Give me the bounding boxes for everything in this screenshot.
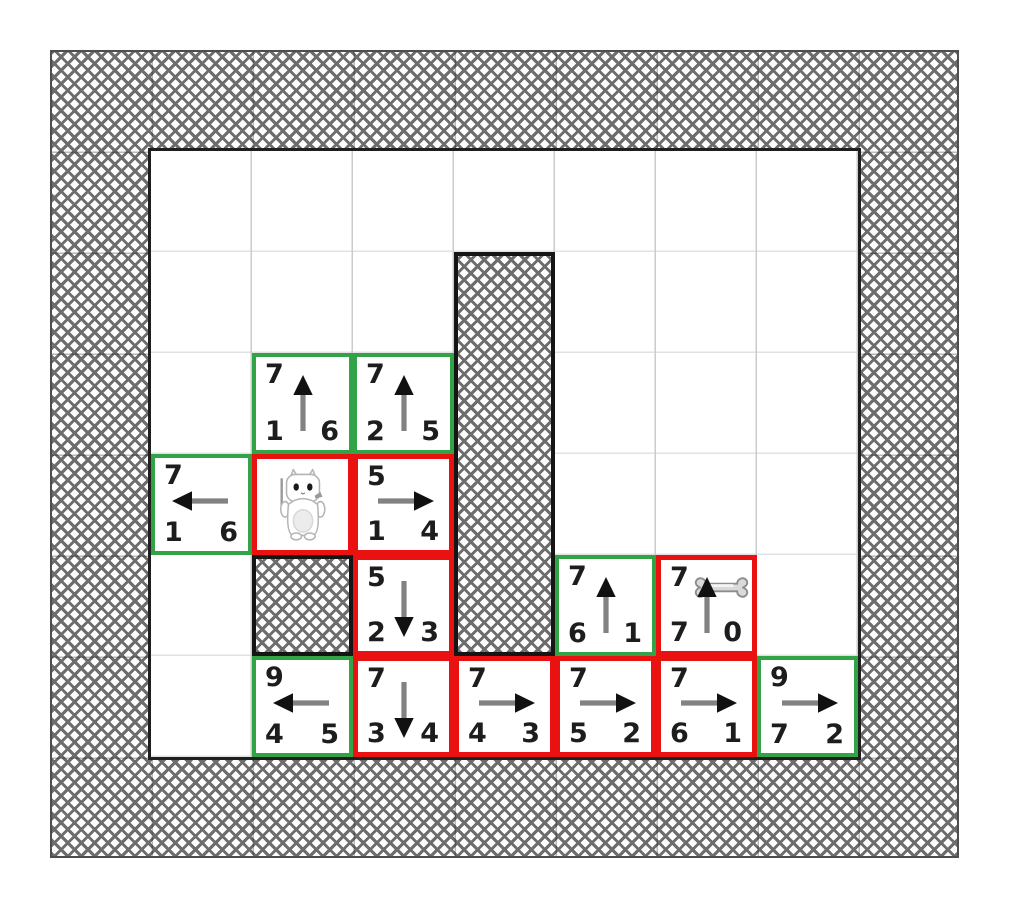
cost-bottom-right: 6 [320, 418, 339, 445]
grid-cell-5-4[interactable]: 770 [656, 555, 757, 656]
grid-cell-5-5[interactable]: 761 [656, 656, 757, 757]
grid-cell-6-5[interactable]: 972 [757, 656, 858, 757]
grid-cell-1-5[interactable]: 945 [252, 656, 353, 757]
grid-cell-2-3[interactable]: 514 [353, 454, 454, 555]
wall-block [454, 252, 555, 656]
cost-bottom-left: 4 [468, 720, 487, 747]
cost-bottom-right: 4 [420, 518, 439, 545]
grid-cell-2-5[interactable]: 734 [353, 656, 454, 757]
cost-top-left: 9 [770, 664, 789, 691]
cost-bottom-left: 5 [569, 720, 588, 747]
cost-bottom-left: 1 [265, 418, 284, 445]
cost-top-left: 7 [367, 665, 386, 692]
cost-bottom-right: 2 [622, 720, 641, 747]
cost-bottom-left: 1 [164, 519, 183, 546]
cost-bottom-left: 6 [670, 720, 689, 747]
cost-bottom-right: 2 [825, 721, 844, 748]
cost-bottom-left: 7 [670, 619, 689, 646]
cost-bottom-right: 3 [420, 619, 439, 646]
cost-bottom-left: 7 [770, 721, 789, 748]
cost-top-left: 7 [265, 361, 284, 388]
cost-top-left: 5 [367, 463, 386, 490]
cost-bottom-left: 3 [367, 720, 386, 747]
cost-top-left: 7 [670, 564, 689, 591]
grid-cell-2-4[interactable]: 523 [353, 555, 454, 656]
cost-top-left: 5 [367, 564, 386, 591]
cost-bottom-left: 1 [367, 518, 386, 545]
grid-cell-3-5[interactable]: 743 [454, 656, 555, 757]
screenshot-stage: 716725716514523761770945734743752761972 [0, 0, 1010, 910]
cost-bottom-right: 5 [320, 721, 339, 748]
grid-cell-1-3[interactable] [252, 454, 353, 555]
cat-icon [272, 465, 334, 541]
cost-top-left: 7 [366, 361, 385, 388]
cost-top-left: 7 [670, 665, 689, 692]
grid-cell-2-2[interactable]: 725 [353, 353, 454, 454]
wall-block [252, 555, 353, 656]
cost-top-left: 7 [569, 665, 588, 692]
cost-top-left: 7 [468, 665, 487, 692]
game-board: 716725716514523761770945734743752761972 [50, 50, 959, 858]
cost-bottom-left: 6 [568, 620, 587, 647]
cost-bottom-left: 2 [366, 418, 385, 445]
cost-bottom-right: 5 [421, 418, 440, 445]
cost-bottom-right: 6 [219, 519, 238, 546]
cost-bottom-right: 4 [420, 720, 439, 747]
cost-bottom-right: 1 [623, 620, 642, 647]
cost-bottom-left: 4 [265, 721, 284, 748]
grid-cell-4-4[interactable]: 761 [555, 555, 656, 656]
inner-play-area: 716725716514523761770945734743752761972 [148, 148, 861, 760]
cost-bottom-left: 2 [367, 619, 386, 646]
cost-top-left: 7 [568, 563, 587, 590]
grid-cell-4-5[interactable]: 752 [555, 656, 656, 757]
cost-top-left: 7 [164, 462, 183, 489]
grid-cell-1-2[interactable]: 716 [252, 353, 353, 454]
grid-cell-0-3[interactable]: 716 [151, 454, 252, 555]
cost-top-left: 9 [265, 664, 284, 691]
cost-bottom-right: 1 [723, 720, 742, 747]
cost-bottom-right: 3 [521, 720, 540, 747]
cost-bottom-right: 0 [723, 619, 742, 646]
